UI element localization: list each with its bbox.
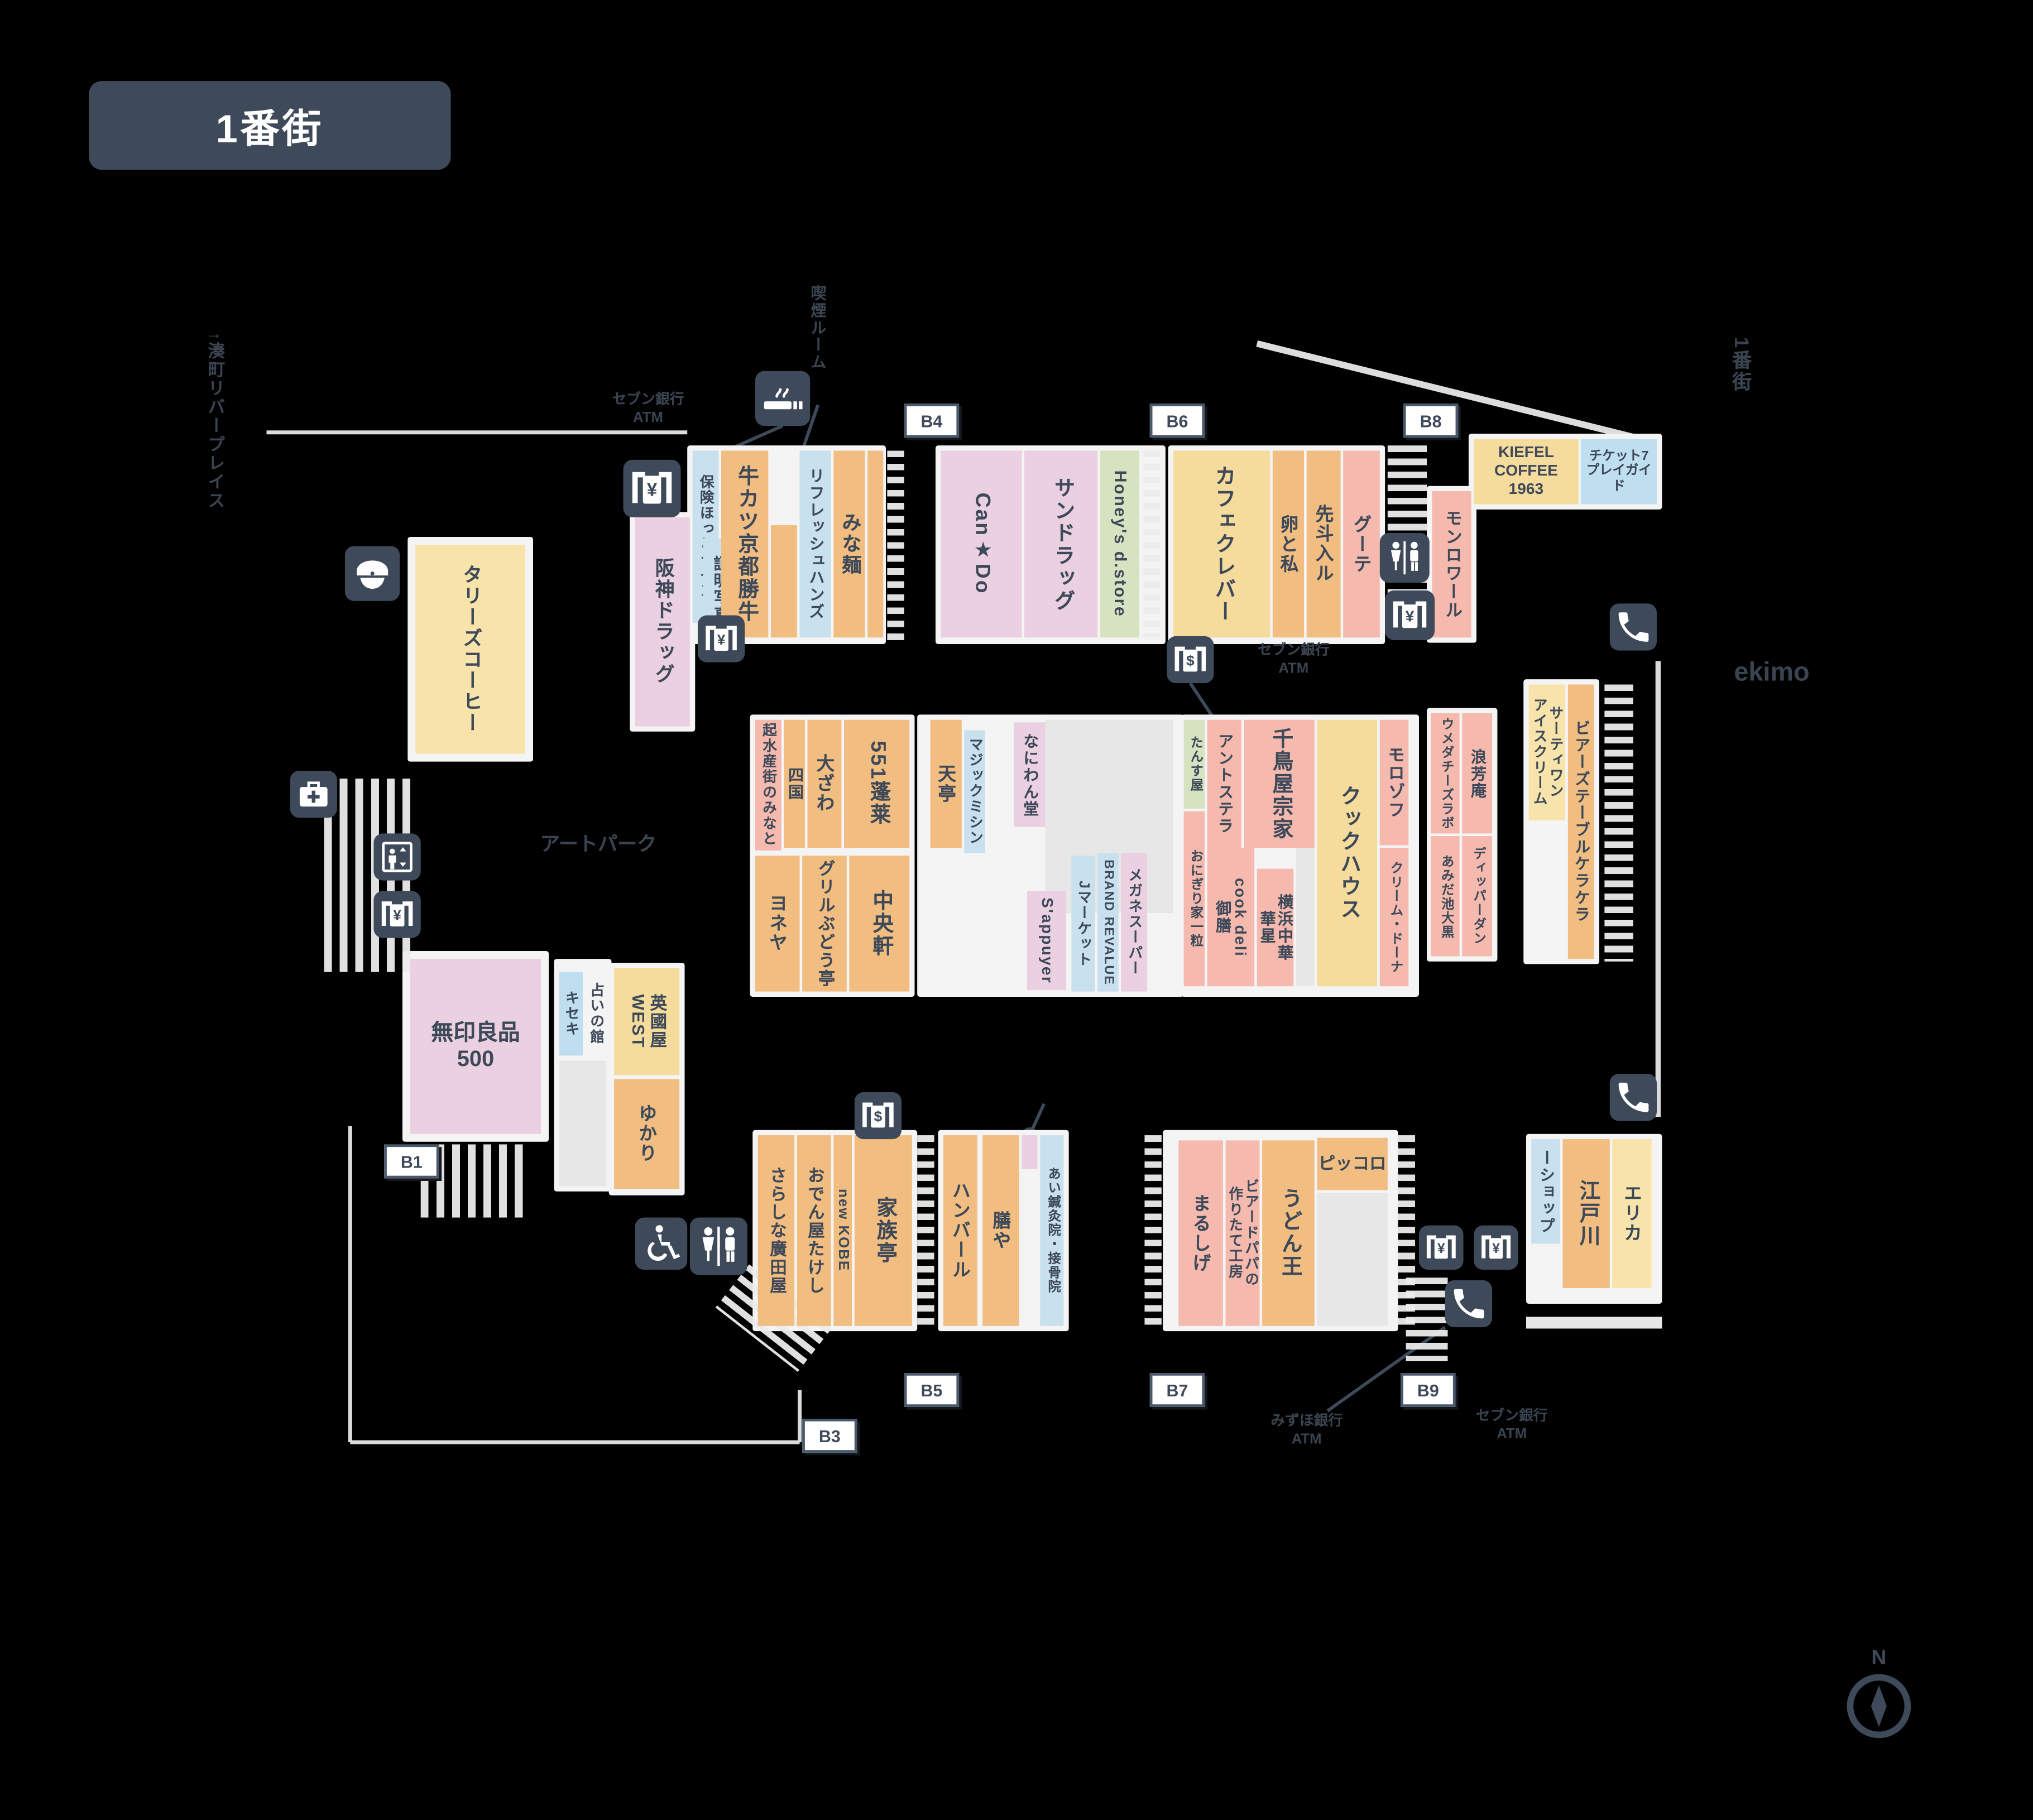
shop[interactable]: モンロワール <box>1432 491 1471 637</box>
shop-label: 先斗入ル <box>1313 505 1334 584</box>
shop-label: モンロワール <box>1442 510 1461 620</box>
empty-floor-area <box>1317 1193 1387 1326</box>
empty-floor-area <box>1526 1317 1662 1328</box>
svg-text:¥: ¥ <box>647 479 658 500</box>
shop[interactable]: 大ざわ <box>808 720 842 848</box>
atm-yen-icon: ¥ <box>1419 1226 1464 1270</box>
shop-label: 無印良品 500 <box>431 1021 520 1072</box>
shop-label: KIEFEL COFFEE 1963 <box>1494 445 1558 499</box>
shop-label: 四国 <box>785 767 803 801</box>
shop-label: あい鍼灸院・接骨院 <box>1044 1167 1059 1294</box>
shop-label: 卵と私 <box>1278 515 1299 574</box>
shop[interactable]: 中央軒 <box>849 856 909 991</box>
shop[interactable]: カフェクレバー <box>1173 451 1270 638</box>
shop-label: 起水産街のみなと <box>760 723 776 847</box>
shop[interactable]: 横浜中華 華星 <box>1257 869 1294 987</box>
faint-label: ekimo <box>1719 657 1824 690</box>
shop-label: まるしげ <box>1191 1194 1211 1273</box>
shop[interactable]: 阪神ドラッグ <box>635 517 690 727</box>
shop-label: おでん屋たけし <box>804 1166 823 1295</box>
shop-label: 横浜中華 華星 <box>1258 894 1293 961</box>
stairs[interactable] <box>887 451 904 640</box>
svg-text:$: $ <box>1186 652 1195 669</box>
atm-dollar-icon: $ <box>1167 636 1214 683</box>
shop[interactable]: 占いの館 <box>586 972 606 1055</box>
shop-label: ハンバール <box>950 1181 971 1280</box>
floor-map-canvas: 1番街 阪神ドラッグ保険ほっとライン証明写真牛カツ京都勝牛リフレッシュハンズみな… <box>0 0 2033 1820</box>
shop-label: クックハウス <box>1335 785 1359 921</box>
faint-label: 喫煙ルーム <box>808 285 827 371</box>
shop-label: あみだ池大黒 <box>1438 854 1452 939</box>
shop[interactable]: キセキ <box>559 972 583 1055</box>
svg-text:¥: ¥ <box>1437 1241 1445 1256</box>
stairs[interactable] <box>917 1135 934 1326</box>
shop[interactable]: リフレッシュハンズ <box>800 451 831 638</box>
gate-b7: B7 <box>1150 1373 1205 1407</box>
shop-label: 千鳥屋宗家 <box>1268 727 1291 840</box>
shop-label: ビアーズテーブルケラケラ <box>1572 720 1590 923</box>
gate-b9: B9 <box>1401 1373 1455 1407</box>
first-aid-icon <box>290 771 337 818</box>
phone-icon <box>1610 1074 1657 1121</box>
atm-yen-icon: ¥ <box>1385 590 1435 640</box>
shop[interactable]: ディッパーダン <box>1462 836 1492 956</box>
page-title: 1番街 <box>89 81 450 170</box>
svg-text:$: $ <box>874 1108 883 1125</box>
shop-label: 551蓬莱 <box>865 741 889 826</box>
shop[interactable]: うどん王 <box>1262 1140 1315 1326</box>
gate-b4: B4 <box>904 404 959 438</box>
shop[interactable]: おにぎり家一粒 <box>1184 811 1205 987</box>
shop[interactable]: new KOBE <box>833 1135 852 1326</box>
shop[interactable]: S'appuyer <box>1027 891 1066 990</box>
shop[interactable]: エリカ <box>1612 1139 1651 1288</box>
shop[interactable]: 英國屋 WEST <box>614 968 679 1075</box>
shop[interactable]: さらしな廣田屋 <box>758 1135 795 1326</box>
shop[interactable]: おでん屋たけし <box>797 1135 831 1326</box>
shop[interactable]: アントステラ <box>1207 720 1241 848</box>
shop-label: ピッコロ <box>1318 1154 1387 1174</box>
shop[interactable]: ハンバール <box>943 1135 977 1326</box>
shop-label: メガネスーパー <box>1126 868 1142 977</box>
shop[interactable]: 江戸川 <box>1562 1139 1609 1288</box>
svg-text:¥: ¥ <box>717 631 726 648</box>
shop[interactable]: マジックミシン <box>964 730 985 853</box>
shop[interactable]: 千鳥屋宗家 <box>1244 720 1314 848</box>
gate-b6: B6 <box>1150 404 1205 438</box>
shop[interactable]: 四国 <box>784 720 804 848</box>
shop[interactable]: グーテ <box>1343 451 1380 638</box>
shop-label: 阪神ドラッグ <box>651 558 673 685</box>
shop-label: Honey's d.store <box>1110 470 1129 618</box>
shop-label: おにぎり家一粒 <box>1187 849 1201 948</box>
shop-label: 浪芳庵 <box>1468 748 1485 799</box>
compass-north-icon: N <box>1840 1644 1918 1748</box>
faint-label: ↑湊町リバープレイス <box>204 332 225 511</box>
shop[interactable]: BRAND REVALUE <box>1097 853 1118 991</box>
shop-label: エリカ <box>1622 1184 1642 1243</box>
shop-label: リフレッシュハンズ <box>807 468 824 620</box>
shop[interactable]: Jマーケット <box>1071 856 1095 991</box>
shop-label: ヨネヤ <box>767 894 788 953</box>
shop-label: ゆかり <box>636 1105 657 1164</box>
shop[interactable]: なにわん堂 <box>1014 722 1045 827</box>
shop[interactable]: ビアードパパの 作りたて工房 <box>1226 1140 1260 1326</box>
shop[interactable]: 起水産街のみなと <box>755 720 781 851</box>
shop[interactable]: クリーム・ドーナ <box>1380 848 1408 986</box>
shop[interactable]: まるしげ <box>1178 1140 1223 1326</box>
shop-label: サンドラッグ <box>1049 477 1073 612</box>
gate-b5: B5 <box>904 1373 959 1407</box>
shop-label: ーショップ <box>1537 1149 1554 1234</box>
shop[interactable]: 牛カツ京都勝牛 <box>721 451 768 638</box>
shop[interactable]: 551蓬莱 <box>844 720 909 848</box>
stairs[interactable] <box>1406 1278 1448 1361</box>
gate-b8: B8 <box>1403 404 1458 438</box>
gate-b3: B3 <box>802 1419 857 1453</box>
shop-label: Jマーケット <box>1075 880 1091 967</box>
shop-label: モロゾフ <box>1384 746 1403 819</box>
faint-label: セブン銀行 ATM <box>1464 1408 1560 1444</box>
floor-map-viewport: 1番街 阪神ドラッグ保険ほっとライン証明写真牛カツ京都勝牛リフレッシュハンズみな… <box>0 0 2033 1820</box>
shop[interactable]: 卵と私 <box>1273 451 1304 638</box>
shop-label: Can★Do <box>970 493 993 595</box>
svg-text:N: N <box>1871 1645 1886 1669</box>
shop[interactable]: 家族亭 <box>855 1135 912 1326</box>
shop[interactable]: あみだ池大黒 <box>1431 836 1459 956</box>
elevator-icon <box>373 833 420 880</box>
shop-label: 中央軒 <box>867 890 891 957</box>
toilet-icon <box>1380 533 1430 583</box>
shop[interactable]: Can★Do <box>941 451 1022 638</box>
shop[interactable]: クックハウス <box>1317 720 1377 987</box>
shop[interactable]: 膳や <box>982 1135 1019 1326</box>
shop-label: 膳や <box>991 1211 1011 1251</box>
empty-floor-area <box>1296 848 1315 986</box>
empty-floor-area <box>559 1061 606 1187</box>
shop-label: ウメダチーズラボ <box>1438 717 1452 830</box>
shop-label: クリーム・ドーナ <box>1387 861 1401 973</box>
shop[interactable]: 先斗入ル <box>1307 451 1341 638</box>
shop[interactable]: Honey's d.store <box>1100 451 1139 638</box>
shop-label: 天亭 <box>936 764 956 804</box>
faint-label: アートパーク <box>520 833 677 858</box>
shop[interactable]: ピッコロ <box>1317 1138 1387 1190</box>
faint-label: セブン銀行 ATM <box>1244 643 1343 679</box>
shop-label: 占いの館 <box>588 983 604 1045</box>
shop-label: みな麺 <box>838 512 860 576</box>
shop-label: キセキ <box>563 991 579 1037</box>
shop-label: タリーズコーヒー <box>459 565 481 734</box>
shop-label: ディッパーダン <box>1470 847 1484 945</box>
shop[interactable]: グリルぶどう亭 <box>802 856 847 991</box>
shop-label: new KOBE <box>835 1189 851 1272</box>
shop[interactable]: たんす屋 <box>1184 720 1205 809</box>
shop-label: カフェクレバー <box>1210 465 1234 623</box>
svg-text:¥: ¥ <box>1406 607 1415 625</box>
shop-label: さらしな廣田屋 <box>766 1166 785 1295</box>
stairs[interactable] <box>1604 685 1633 962</box>
smoking-icon <box>755 371 810 426</box>
svg-text:¥: ¥ <box>393 907 401 924</box>
shop-label: BRAND REVALUE <box>1101 859 1115 985</box>
shop[interactable]: KIEFEL COFFEE 1963 <box>1474 439 1578 504</box>
shop-label: 英國屋 WEST <box>628 994 666 1049</box>
shop-label: マジックミシン <box>967 737 983 846</box>
shop[interactable]: 浪芳庵 <box>1462 713 1492 833</box>
svg-text:¥: ¥ <box>1492 1241 1500 1256</box>
shop-label: cook deli 御膳 <box>1213 877 1248 957</box>
atm-yen-icon: ¥ <box>698 615 745 662</box>
shop[interactable]: cook deli 御膳 <box>1207 848 1254 986</box>
shop[interactable]: ゆかり <box>614 1079 679 1189</box>
shop-unlabeled[interactable] <box>1022 1135 1037 1169</box>
police-icon <box>345 546 400 601</box>
shop-label: グリルぶどう亭 <box>815 859 834 988</box>
shop[interactable]: 無印良品 500 <box>410 959 541 1134</box>
shop[interactable]: みな麺 <box>833 451 865 638</box>
shop[interactable]: サンドラッグ <box>1024 451 1097 638</box>
shop-label: チケット7 プレイガイド <box>1581 449 1657 494</box>
phone-icon <box>1610 603 1657 650</box>
atm-yen-icon: ¥ <box>1474 1226 1518 1270</box>
shop-label: うどん王 <box>1277 1188 1300 1279</box>
stairs[interactable] <box>1388 445 1427 613</box>
shop-label: 大ざわ <box>814 754 835 813</box>
shop-unlabeled[interactable] <box>771 525 797 637</box>
shop[interactable]: サーティワン アイスクリーム <box>1529 685 1566 820</box>
gate-b1: B1 <box>384 1144 439 1178</box>
faint-label: セブン銀行 ATM <box>601 392 696 428</box>
shop[interactable]: チケット7 プレイガイド <box>1581 439 1657 504</box>
shop[interactable]: ビアーズテーブルケラケラ <box>1568 685 1594 959</box>
shop[interactable]: モロゾフ <box>1380 720 1408 846</box>
phone-icon <box>1445 1280 1492 1327</box>
atm-yen-icon: ¥ <box>373 891 420 938</box>
shop-label: 家族亭 <box>871 1197 895 1264</box>
shop-label: グーテ <box>1351 515 1372 574</box>
shop-label: S'appuyer <box>1038 897 1055 984</box>
shop[interactable]: メガネスーパー <box>1121 853 1147 991</box>
shop[interactable]: タリーズコーヒー <box>415 545 525 754</box>
shop[interactable]: ウメダチーズラボ <box>1431 713 1459 833</box>
shop-label: 牛カツ京都勝牛 <box>733 465 756 623</box>
shop-label: アントステラ <box>1216 733 1233 834</box>
shop-label: たんす屋 <box>1187 736 1201 793</box>
shop-label: なにわん堂 <box>1021 732 1038 817</box>
shop[interactable]: ーショップ <box>1531 1139 1560 1243</box>
stairs[interactable] <box>1143 451 1160 638</box>
shop-label: サーティワン アイスクリーム <box>1531 698 1564 807</box>
shop[interactable]: ヨネヤ <box>755 856 800 991</box>
shop-unlabeled[interactable] <box>867 451 883 638</box>
atm-dollar-icon: $ <box>855 1092 902 1139</box>
atm-yen-icon: ¥ <box>624 460 681 517</box>
shop-label: 江戸川 <box>1575 1180 1598 1247</box>
faint-label: みずほ銀行 ATM <box>1254 1414 1359 1449</box>
shop[interactable]: あい鍼灸院・接骨院 <box>1040 1135 1063 1326</box>
faint-label: 1番街 <box>1727 337 1752 393</box>
shop-label: ビアードパパの 作りたて工房 <box>1226 1179 1259 1288</box>
toilet-icon <box>690 1218 747 1275</box>
wheelchair-icon <box>635 1218 688 1270</box>
shop[interactable]: 天亭 <box>931 720 962 848</box>
stairs[interactable] <box>1144 1135 1161 1326</box>
